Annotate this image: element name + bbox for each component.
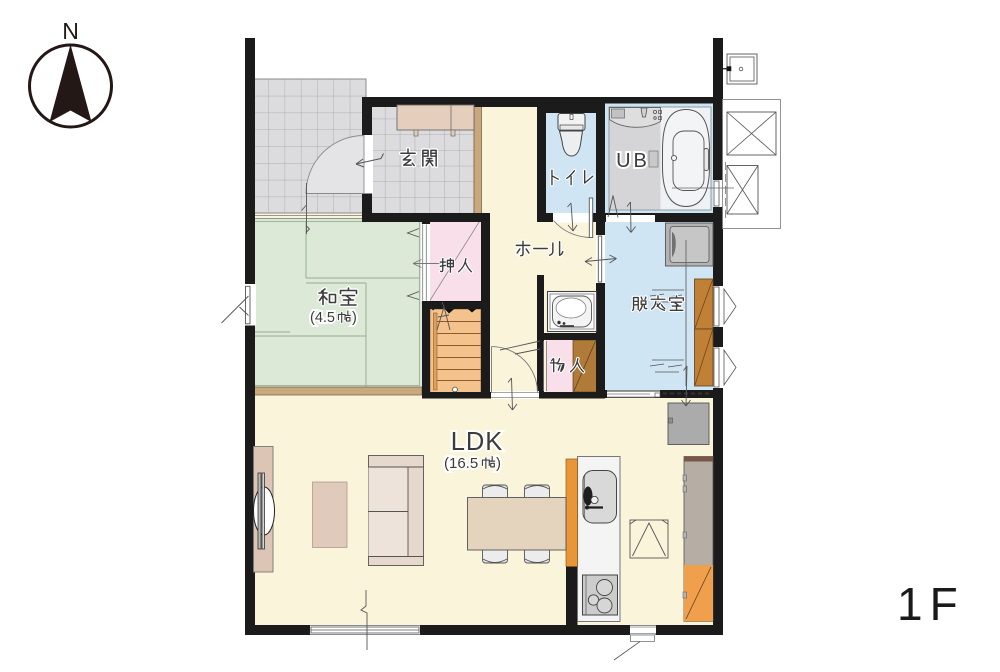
svg-text:UB: UB [616, 150, 650, 172]
svg-text:N: N [62, 18, 79, 44]
svg-text:1F: 1F [897, 578, 965, 630]
svg-text:(4.5: (4.5 [310, 310, 335, 326]
svg-text:): ) [496, 455, 501, 472]
svg-text:): ) [352, 310, 357, 326]
svg-text:(16.5: (16.5 [444, 455, 478, 472]
svg-text:LDK: LDK [451, 428, 504, 456]
